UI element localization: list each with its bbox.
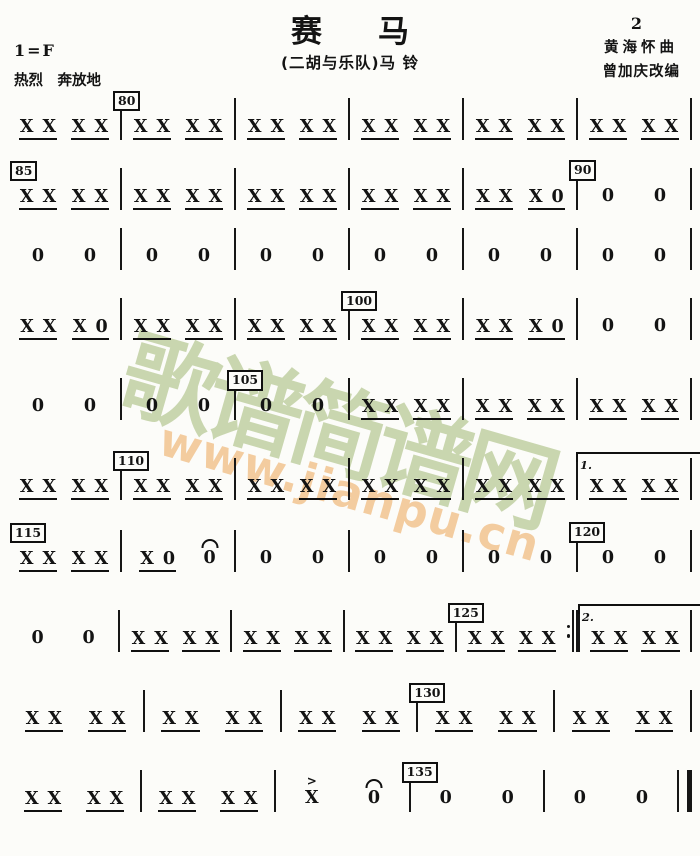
measure: XXXX xyxy=(142,791,274,813)
beat-group: XX xyxy=(247,119,285,141)
strike-note: X xyxy=(43,119,57,137)
beat-group: 0 xyxy=(487,550,501,568)
measure: XXXX xyxy=(8,791,140,813)
beat-group: XX xyxy=(641,479,679,501)
strike-note: X xyxy=(271,119,285,137)
strike-note: X xyxy=(414,119,428,137)
measure: 10500 xyxy=(236,398,348,420)
rest-note: 0 xyxy=(440,790,452,808)
strike-note: X xyxy=(271,189,285,207)
barline xyxy=(690,168,692,210)
strike-note: X xyxy=(528,479,542,497)
score-line: 115XXXXX0000000012000 xyxy=(8,524,692,572)
volta-bracket: 2. xyxy=(578,604,700,619)
beat-group: XX xyxy=(131,631,169,653)
strike-note: X xyxy=(72,551,86,569)
measure: 00 xyxy=(8,630,118,652)
measure: 00 xyxy=(464,550,576,572)
measure: XXX0 xyxy=(8,319,120,341)
strike-note: X xyxy=(140,551,154,569)
rest-note: 0 xyxy=(198,248,210,266)
strike-note: X xyxy=(362,119,376,137)
measure: X00 xyxy=(122,550,234,572)
beat-group: XX xyxy=(25,711,63,733)
strike-note: X xyxy=(244,791,258,809)
beat-group: 0 xyxy=(367,790,381,808)
beat-group: 0 xyxy=(439,790,453,808)
beat-group: 0 xyxy=(145,248,159,266)
beat-group: 0 xyxy=(197,248,211,266)
beat-group: 0 xyxy=(259,398,273,416)
rest-note: 0 xyxy=(32,248,44,266)
rest-note: 0 xyxy=(32,398,44,416)
strike-note: X xyxy=(323,119,337,137)
measure: XXXX xyxy=(555,711,690,733)
strike-note: X xyxy=(162,711,176,729)
strike-note: X xyxy=(157,189,171,207)
score-line: 00XXXXXXXXXXXX125XXXX2.XXXX xyxy=(8,604,692,652)
strike-note: X xyxy=(271,319,285,337)
beat-group: XX xyxy=(86,791,124,813)
beat-group: X> xyxy=(304,790,320,808)
strike-note: X xyxy=(551,479,565,497)
measure: 125XXXX xyxy=(457,631,567,653)
final-barline xyxy=(677,770,692,812)
measure-number-badge: 105 xyxy=(227,370,263,391)
beat-group: X0 xyxy=(139,551,176,573)
rest-note: 0 xyxy=(488,248,500,266)
measure-number-badge: 135 xyxy=(402,762,438,783)
strike-note: X xyxy=(362,319,376,337)
beat-group: XX xyxy=(19,119,57,141)
strike-note: X xyxy=(183,631,197,649)
measure: 00 xyxy=(8,248,120,270)
score-line: 000000000000 xyxy=(8,222,692,270)
measure: 00 xyxy=(122,248,234,270)
beat-group: XX xyxy=(299,119,337,141)
strike-note: X xyxy=(590,479,604,497)
strike-note: X xyxy=(665,479,679,497)
strike-note: X xyxy=(642,399,656,417)
beat-group: XX xyxy=(406,631,444,653)
measure: XXXX xyxy=(236,319,348,341)
strike-note: X xyxy=(134,319,148,337)
beat-group: XX xyxy=(527,399,565,421)
beat-group: XX xyxy=(71,189,109,211)
strike-note: X xyxy=(209,119,223,137)
beat-group: XX xyxy=(225,711,263,733)
strike-note: X xyxy=(591,631,605,649)
barline xyxy=(690,98,692,140)
strike-note: X xyxy=(209,479,223,497)
measure: XXXX xyxy=(578,399,690,421)
strike-note: X xyxy=(491,631,505,649)
beat-group: 0 xyxy=(573,790,587,808)
beat-group: 0 xyxy=(653,550,667,568)
rest-note: 0 xyxy=(374,550,386,568)
strike-note: X xyxy=(271,479,285,497)
barline xyxy=(690,378,692,420)
strike-note: X xyxy=(476,319,490,337)
repeat-dots xyxy=(567,625,571,638)
beat-group: XX xyxy=(298,711,336,733)
strike-note: X xyxy=(48,711,62,729)
strike-note: X xyxy=(209,319,223,337)
beat-group: X0 xyxy=(528,319,565,341)
measure-number-badge: 115 xyxy=(10,523,46,544)
beat-group: 0 xyxy=(653,248,667,266)
rest-note: 0 xyxy=(654,550,666,568)
strike-note: X xyxy=(476,189,490,207)
rest-note: 0 xyxy=(426,248,438,266)
beat-group: XX xyxy=(475,399,513,421)
measure-number-badge: 90 xyxy=(569,160,596,181)
strike-note: X xyxy=(248,119,262,137)
strike-note: X xyxy=(542,631,556,649)
beat-group: 0 xyxy=(373,248,387,266)
score-line: 000010500XXXXXXXXXXXX xyxy=(8,372,692,420)
measure: XXXX xyxy=(345,631,455,653)
beat-group: 0 xyxy=(311,248,325,266)
strike-note: X xyxy=(642,479,656,497)
measure: 00 xyxy=(236,550,348,572)
strike-note: X xyxy=(295,631,309,649)
rest-note: 0 xyxy=(426,550,438,568)
measure: 110XXXX xyxy=(122,479,234,501)
beat-group: XX xyxy=(24,791,62,813)
measure: 00 xyxy=(122,398,234,420)
beat-group: XX xyxy=(355,631,393,653)
measure: XXX0 xyxy=(464,319,576,341)
strike-note: X xyxy=(72,479,86,497)
measure: X>0 xyxy=(276,790,408,812)
beat-group: XX xyxy=(413,399,451,421)
rest-note: 0 xyxy=(84,248,96,266)
strike-note: X xyxy=(20,479,34,497)
measure: XXXX xyxy=(122,319,234,341)
strike-note: X xyxy=(89,711,103,729)
strike-note: X xyxy=(385,711,399,729)
beat-group: XX xyxy=(220,791,258,813)
rest-note: 0 xyxy=(312,550,324,568)
measure: XXXX xyxy=(236,479,348,501)
strike-note: X xyxy=(20,319,34,337)
rest-note: 0 xyxy=(654,318,666,336)
strike-note: X xyxy=(636,711,650,729)
strike-note: X xyxy=(300,189,314,207)
rest-note: 0 xyxy=(312,398,324,416)
rest-note: 0 xyxy=(602,248,614,266)
beat-group: XX xyxy=(133,319,171,341)
beat-group: XX xyxy=(185,319,223,341)
strike-note: X xyxy=(323,189,337,207)
beat-group: XX xyxy=(247,319,285,341)
measure: XXXX xyxy=(8,711,143,733)
measure: 1.XXXX xyxy=(578,479,690,501)
strike-note: X xyxy=(110,791,124,809)
strike-note: X xyxy=(362,189,376,207)
beat-group: 0 xyxy=(601,550,615,568)
strike-note: X xyxy=(476,399,490,417)
score-line: XXXX80XXXXXXXXXXXXXXXXXXXX xyxy=(8,92,692,140)
beat-group: 0 xyxy=(203,550,217,568)
strike-note: X xyxy=(385,119,399,137)
barline xyxy=(690,228,692,270)
beat-group: XX xyxy=(413,189,451,211)
rest-note: 0 xyxy=(84,398,96,416)
strike-note: X xyxy=(614,631,628,649)
beat-group: 0 xyxy=(31,398,45,416)
measure-number-badge: 80 xyxy=(113,91,140,112)
beat-group: 0 xyxy=(501,790,515,808)
strike-note: X xyxy=(528,399,542,417)
beat-group: XX xyxy=(361,189,399,211)
rest-note: 0 xyxy=(654,188,666,206)
strike-note: X xyxy=(300,479,314,497)
strike-note: X xyxy=(20,119,34,137)
beat-group: XX xyxy=(589,119,627,141)
strike-note: X xyxy=(414,189,428,207)
strike-note: X xyxy=(590,119,604,137)
beat-group: XX xyxy=(527,479,565,501)
strike-note: X xyxy=(436,711,450,729)
beat-group: XX xyxy=(475,119,513,141)
strike-note: X xyxy=(385,479,399,497)
measure: XXXX xyxy=(120,631,230,653)
beat-group: 0 xyxy=(601,248,615,266)
strike-note: X xyxy=(248,189,262,207)
rest-note: 0 xyxy=(260,550,272,568)
strike-note: X xyxy=(529,189,543,207)
rest-note: 0 xyxy=(654,248,666,266)
strike-note: X xyxy=(299,711,313,729)
rest-note: 0 xyxy=(31,630,43,648)
measure: XXX0 xyxy=(464,189,576,211)
strike-note: X xyxy=(590,399,604,417)
strike-note: X xyxy=(356,631,370,649)
strike-note: X xyxy=(437,119,451,137)
strike-note: X xyxy=(613,119,627,137)
beat-group: XX xyxy=(413,119,451,141)
strike-note: X xyxy=(205,631,219,649)
beat-group: XX xyxy=(19,319,57,341)
strike-note: X xyxy=(665,119,679,137)
strike-note: X xyxy=(226,711,240,729)
score-line: XXXX110XXXXXXXXXXXXXXXX1.XXXX xyxy=(8,452,692,500)
strike-note: X> xyxy=(305,790,319,808)
measure: XXXX xyxy=(282,711,417,733)
beat-group: XX xyxy=(71,479,109,501)
strike-note: X xyxy=(323,479,337,497)
strike-note: X xyxy=(468,631,482,649)
measure: XXXX xyxy=(350,189,462,211)
beat-group: X0 xyxy=(528,189,565,211)
beat-group: XX xyxy=(475,189,513,211)
beat-group: 0 xyxy=(653,318,667,336)
beat-group: XX xyxy=(635,711,673,733)
rest-note: 0 xyxy=(163,551,175,569)
strike-note: X xyxy=(528,119,542,137)
beat-group: XX xyxy=(498,711,536,733)
beat-group: 0 xyxy=(601,188,615,206)
strike-note: X xyxy=(266,631,280,649)
beat-group: 0 xyxy=(145,398,159,416)
beat-group: XX xyxy=(641,119,679,141)
strike-note: X xyxy=(157,479,171,497)
measure: 115XXXX xyxy=(8,551,120,573)
measure: XXXX xyxy=(464,479,576,501)
rest-note: 0 xyxy=(574,790,586,808)
strike-note: X xyxy=(132,631,146,649)
strike-note: X xyxy=(248,711,262,729)
beat-group: 0 xyxy=(259,248,273,266)
strike-note: X xyxy=(613,399,627,417)
rest-note: 0 xyxy=(552,189,564,207)
strike-note: X xyxy=(209,189,223,207)
strike-note: X xyxy=(362,399,376,417)
strike-note: X xyxy=(437,399,451,417)
barline xyxy=(690,690,692,732)
strike-note: X xyxy=(157,119,171,137)
measure: 00 xyxy=(350,248,462,270)
beat-group: XX xyxy=(641,631,679,653)
rest-note: 0 xyxy=(368,790,380,808)
beat-group: XX xyxy=(527,119,565,141)
measure-number-badge: 120 xyxy=(569,522,605,543)
beat-group: 0 xyxy=(653,188,667,206)
accent-mark: > xyxy=(307,775,317,787)
strike-note: X xyxy=(407,631,421,649)
beat-group: XX xyxy=(413,479,451,501)
strike-note: X xyxy=(499,479,513,497)
beat-group: 0 xyxy=(539,248,553,266)
strike-note: X xyxy=(323,319,337,337)
beat-group: XX xyxy=(161,711,199,733)
strike-note: X xyxy=(95,551,109,569)
measure: XXXX xyxy=(578,119,690,141)
beat-group: XX xyxy=(413,319,451,341)
strike-note: X xyxy=(43,551,57,569)
strike-note: X xyxy=(385,399,399,417)
measure: XXXX xyxy=(350,399,462,421)
rest-note: 0 xyxy=(146,248,158,266)
beat-group: 0 xyxy=(373,550,387,568)
strike-note: X xyxy=(300,319,314,337)
strike-note: X xyxy=(551,399,565,417)
strike-note: X xyxy=(665,631,679,649)
strike-note: X xyxy=(43,189,57,207)
beat-group: XX xyxy=(133,479,171,501)
strike-note: X xyxy=(499,319,513,337)
measure: 00 xyxy=(545,790,677,812)
beat-group: XX xyxy=(361,319,399,341)
rest-note: 0 xyxy=(198,398,210,416)
measure-number-badge: 110 xyxy=(113,451,149,472)
strike-note: X xyxy=(573,711,587,729)
strike-note: X xyxy=(300,119,314,137)
strike-note: X xyxy=(221,791,235,809)
beat-group: XX xyxy=(518,631,556,653)
measure: 100XXXX xyxy=(350,319,462,341)
measure: 00 xyxy=(578,248,690,270)
strike-note: X xyxy=(26,711,40,729)
repeat-dot xyxy=(567,634,571,638)
strike-note: X xyxy=(317,631,331,649)
strike-note: X xyxy=(499,189,513,207)
measure: 00 xyxy=(578,318,690,340)
beat-group: 0 xyxy=(539,550,553,568)
strike-note: X xyxy=(72,119,86,137)
beat-group: 0 xyxy=(82,630,96,648)
strike-note: X xyxy=(73,319,87,337)
strike-note: X xyxy=(112,711,126,729)
rest-note: 0 xyxy=(146,398,158,416)
beat-group: XX xyxy=(158,791,196,813)
beat-group: XX xyxy=(361,119,399,141)
measure: XXXX xyxy=(464,119,576,141)
rest-note: 0 xyxy=(260,248,272,266)
beat-group: 0 xyxy=(30,630,44,648)
beat-group: XX xyxy=(294,631,332,653)
rest-note: 0 xyxy=(374,248,386,266)
strike-note: X xyxy=(437,189,451,207)
strike-note: X xyxy=(43,319,57,337)
strike-note: X xyxy=(529,319,543,337)
strike-note: X xyxy=(414,319,428,337)
strike-note: X xyxy=(134,189,148,207)
rest-note: 0 xyxy=(552,319,564,337)
score-line: XXX0XXXXXXXX100XXXXXXX000 xyxy=(8,292,692,340)
fermata-mark xyxy=(201,539,218,548)
beat-group: XX xyxy=(589,399,627,421)
strike-note: X xyxy=(385,189,399,207)
beat-group: XX xyxy=(475,479,513,501)
beat-group: XX xyxy=(362,711,400,733)
beat-group: XX xyxy=(361,479,399,501)
beat-group: XX xyxy=(247,189,285,211)
strike-note: X xyxy=(95,479,109,497)
beat-group: XX xyxy=(71,119,109,141)
barline xyxy=(690,530,692,572)
rest-note: 0 xyxy=(312,248,324,266)
volta-bracket: 1. xyxy=(576,452,700,467)
repeat-dot xyxy=(567,625,571,629)
measure: XXXX xyxy=(236,119,348,141)
strike-note: X xyxy=(322,711,336,729)
measure: 00 xyxy=(8,398,120,420)
beat-group: 0 xyxy=(83,248,97,266)
strike-note: X xyxy=(362,479,376,497)
strike-note: X xyxy=(186,319,200,337)
measure-number-badge: 85 xyxy=(10,161,37,182)
strike-note: X xyxy=(185,711,199,729)
beat-group: XX xyxy=(589,479,627,501)
measure-number-badge: 125 xyxy=(448,603,484,624)
barline xyxy=(690,298,692,340)
barline xyxy=(572,610,574,652)
score-line: XXXXXXXXX>01350000 xyxy=(8,764,692,812)
beat-group: X0 xyxy=(72,319,109,341)
beat-group: 0 xyxy=(311,550,325,568)
beat-group: XX xyxy=(185,189,223,211)
measure: XXXX xyxy=(350,479,462,501)
measure: 85XXXX xyxy=(8,189,120,211)
measure: 00 xyxy=(350,550,462,572)
strike-note: X xyxy=(499,711,513,729)
beat-group: XX xyxy=(185,119,223,141)
fermata-mark xyxy=(365,779,382,788)
score-body: XXXX80XXXXXXXXXXXXXXXXXXXX85XXXXXXXXXXXX… xyxy=(0,0,700,856)
